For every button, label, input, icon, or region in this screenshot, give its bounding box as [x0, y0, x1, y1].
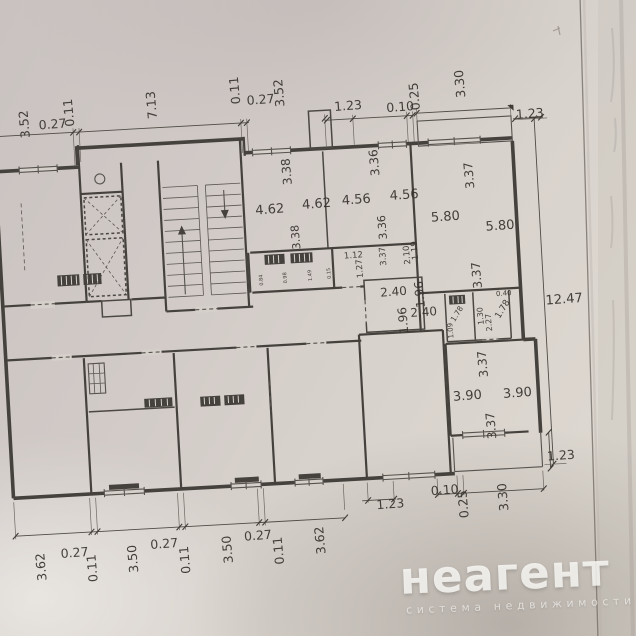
dimension-label: 1.19: [409, 241, 421, 261]
dimension-label: 1.27: [354, 259, 366, 279]
dimension-label: 4.56: [341, 192, 371, 209]
dimension-label: 3.38: [279, 158, 295, 186]
dimension-label: 3.37: [475, 350, 491, 378]
dimension-label: 0.11: [226, 76, 243, 105]
window: [383, 471, 435, 482]
dimension-label: 3.37: [483, 412, 499, 440]
closet: [88, 363, 106, 394]
dimension-label: 3.62: [311, 526, 328, 555]
dimension-label: 1.78: [449, 304, 466, 323]
dimension-label: 0.11: [176, 545, 193, 574]
dimension-label: 0.25: [454, 490, 471, 519]
dimension-label: 3.50: [218, 535, 235, 564]
watermark: неагент система недвижимости: [399, 546, 636, 617]
dimension-label: 1.23: [515, 105, 544, 122]
dimension-label: 3.30: [494, 483, 511, 512]
elevator-shaft: [84, 196, 123, 235]
plan-group: 3.520.270.117.130.110.273.521.230.100.25…: [0, 58, 597, 587]
dimension-label: 0.40: [496, 289, 512, 298]
dimension-label: 0.98: [282, 272, 289, 284]
dimension-label: 4.62: [255, 201, 285, 218]
dimension-label: 3.50: [124, 544, 141, 573]
window: [378, 140, 406, 150]
corridor-doors: [49, 300, 326, 361]
dimension-label: 3.37: [469, 261, 485, 289]
dimension-label: 0.27: [150, 535, 179, 552]
dimension-label: 3.90: [502, 385, 532, 402]
dimension-label: 7.13: [143, 91, 160, 120]
dimension-label: 1.23: [546, 447, 575, 464]
dimension-label: 4.56: [389, 187, 419, 204]
elevator-block: [78, 141, 167, 318]
dimension-label: 0.11: [270, 536, 287, 565]
dimension-label: 4.62: [302, 196, 332, 213]
watermark-brand: неагент: [399, 546, 636, 601]
dimension-label: 3.37: [461, 162, 477, 190]
dimension-label: 1.96: [395, 306, 411, 334]
paper-artifacts: [553, 0, 636, 636]
floor-plan-photo: 3.520.270.117.130.110.273.521.230.100.25…: [0, 0, 636, 636]
dimension-label: 5.80: [485, 218, 515, 235]
plan-drawing: 3.520.270.117.130.110.273.521.230.100.25…: [0, 0, 636, 636]
dimension-label: 3.52: [15, 110, 32, 139]
window: [19, 164, 57, 174]
elevator-vestibule: [102, 299, 132, 317]
dimension-label: 0.84: [258, 274, 265, 286]
dimension-label: 2.27: [484, 313, 495, 332]
stair-direction-arrows: [176, 190, 234, 295]
dimension-label: 0.27: [243, 527, 272, 544]
vent-grill: [144, 397, 172, 408]
vent-grill: [200, 396, 221, 407]
dimension-label: 3.30: [451, 69, 468, 98]
dimension-label: 5.80: [430, 209, 460, 226]
stairwell: [157, 139, 253, 312]
dimension-label: 1.23: [334, 97, 363, 114]
garbage-chute-icon: [95, 174, 106, 185]
dimension-label: 3.36: [366, 149, 382, 177]
dimension-label: 0.11: [60, 98, 77, 127]
vent-grill: [264, 254, 285, 265]
dimension-label: 3.36: [375, 215, 390, 241]
paper-mark: [553, 26, 560, 35]
facade-shaft: [308, 110, 332, 149]
dimension-label: 3.37: [378, 246, 390, 266]
elevator-shaft: [86, 238, 126, 297]
dimension-label: 1.09: [446, 323, 455, 339]
dimension-label: 1.49: [307, 270, 314, 282]
window: [252, 146, 290, 156]
dimension-label: 12.47: [545, 291, 583, 309]
top-rooms: [240, 105, 424, 340]
vent-grill: [224, 394, 245, 405]
dimension-label: 1.23: [376, 495, 405, 512]
dimension-label: 0.25: [405, 82, 422, 111]
bottom-rooms: [83, 330, 450, 494]
dimension-label: 3.62: [32, 552, 49, 581]
dimension-label: 0.15: [326, 267, 333, 279]
dimension-label: 0.11: [83, 554, 100, 583]
dimension-label: 2.40: [380, 284, 408, 300]
dimension-label: 3.90: [452, 388, 482, 405]
dimension-label: 3.52: [270, 78, 287, 107]
dimension-label: 2.40: [410, 304, 438, 320]
dimension-label: 3.38: [288, 224, 303, 250]
vent-grill: [449, 295, 465, 305]
paper-fold-line: [580, 0, 598, 636]
window: [428, 136, 480, 147]
